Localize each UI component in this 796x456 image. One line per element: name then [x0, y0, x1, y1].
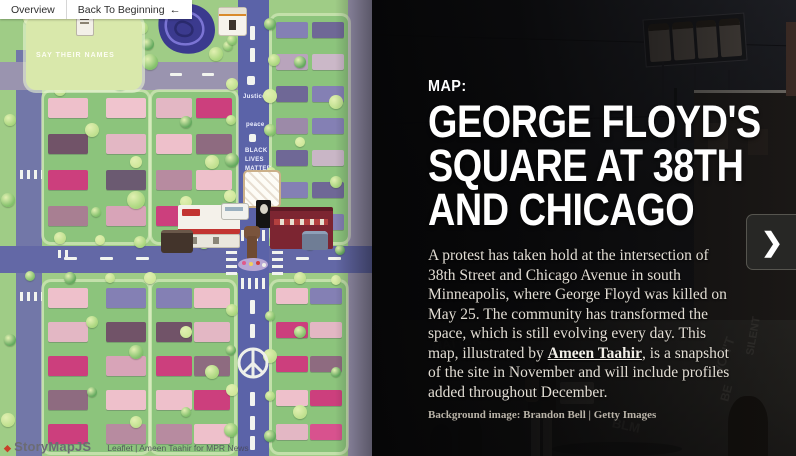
tree — [130, 156, 142, 168]
fist-road-art — [247, 76, 255, 85]
slide-title-line: GEORGE FLOYD'S — [428, 100, 690, 144]
lane-dash — [250, 26, 255, 40]
tree — [130, 416, 142, 428]
crosswalk — [20, 292, 42, 301]
tree — [264, 124, 276, 136]
tree — [180, 116, 192, 128]
lane-dash — [296, 257, 309, 260]
back-to-beginning-button[interactable]: Back To Beginning ← — [67, 0, 192, 19]
house-roof — [276, 390, 308, 406]
house-roof — [194, 390, 230, 410]
tree — [91, 207, 101, 217]
road-art-text: LIVES — [245, 157, 264, 163]
back-arrow-icon: ← — [170, 4, 181, 16]
house-roof — [106, 288, 146, 308]
lane-dash — [250, 416, 255, 430]
house-roof — [276, 288, 308, 304]
shed-icon — [218, 7, 247, 36]
tree — [294, 272, 306, 284]
tree — [294, 326, 306, 338]
tree — [85, 123, 99, 137]
house-roof — [48, 356, 88, 376]
tree — [134, 236, 146, 248]
lane-dash — [250, 392, 255, 406]
house-roof — [276, 118, 308, 134]
chevron-right-icon: ❯ — [761, 229, 783, 255]
illustrated-map[interactable]: JusticepeaceBLACKLIVESMATTER SAY THEIR N… — [0, 0, 420, 456]
tree — [87, 387, 97, 397]
fist-road-art — [249, 134, 256, 142]
house-roof — [48, 98, 88, 118]
storymap-toolbar: Overview Back To Beginning ← — [0, 0, 192, 19]
storymap-diamond-icon: ◆ — [4, 443, 11, 453]
house-roof — [48, 170, 88, 190]
tree — [226, 384, 238, 396]
house-roof — [310, 322, 342, 338]
house-roof — [106, 390, 146, 410]
tree — [331, 275, 341, 285]
tree — [4, 114, 16, 126]
lane-dash — [170, 73, 182, 76]
house-roof — [106, 322, 146, 342]
house-roof — [156, 98, 192, 118]
lane-dash — [250, 436, 255, 450]
tree — [1, 193, 15, 207]
house-roof — [48, 206, 88, 226]
tree — [95, 235, 105, 245]
tree — [205, 365, 219, 379]
house-roof — [106, 356, 146, 376]
tree — [129, 345, 143, 359]
house-roof — [194, 322, 230, 342]
lane-dash — [100, 257, 113, 260]
house-roof — [156, 288, 192, 308]
peace-sign-road-art — [236, 346, 270, 380]
tree — [263, 89, 277, 103]
leaflet-attribution[interactable]: Leaflet | Ameen Taahir for MPR News — [107, 443, 248, 453]
storymap-label: StoryMapJS — [14, 439, 91, 454]
house-roof — [156, 170, 192, 190]
slide-title-line: AND CHICAGO — [428, 188, 690, 232]
tree — [268, 54, 280, 66]
tree — [25, 271, 35, 281]
house-roof — [312, 54, 344, 70]
tree — [105, 273, 115, 283]
crosswalk — [20, 170, 42, 179]
lane-dash — [250, 300, 255, 314]
tree — [64, 272, 76, 284]
house-roof — [312, 22, 344, 38]
house-roof — [156, 134, 192, 154]
house-roof — [196, 170, 232, 190]
lane-dash — [250, 324, 255, 338]
fist-sculpture-planter — [238, 258, 268, 271]
crosswalk — [272, 249, 283, 275]
tree — [264, 430, 276, 442]
house-roof — [312, 118, 344, 134]
overview-label: Overview — [11, 4, 55, 16]
slide-text: MAP: GEORGE FLOYD'S SQUARE AT 38TH AND C… — [428, 78, 740, 421]
house-roof — [276, 150, 308, 166]
house-roof — [276, 424, 308, 440]
tree — [265, 311, 275, 321]
george-floyd-flag — [256, 200, 271, 228]
tree — [225, 153, 239, 167]
slide-kicker: MAP: — [428, 78, 709, 96]
tree — [293, 405, 307, 419]
house-roof — [276, 22, 308, 38]
house-roof — [194, 288, 230, 308]
tree — [1, 413, 15, 427]
tent-structure — [302, 231, 328, 250]
tree — [54, 232, 66, 244]
house-roof — [276, 356, 308, 372]
house-roof — [48, 288, 88, 308]
lane-dash — [202, 73, 214, 76]
tree — [4, 334, 16, 346]
house-roof — [106, 206, 146, 226]
tree — [180, 326, 192, 338]
tree — [144, 272, 156, 284]
van-icon — [221, 203, 249, 220]
tree — [265, 391, 275, 401]
house-roof — [312, 150, 344, 166]
slide-title-line: SQUARE AT 38TH — [428, 144, 690, 188]
house-roof — [106, 170, 146, 190]
tree — [331, 367, 341, 377]
house-roof — [196, 134, 232, 154]
tree — [294, 56, 306, 68]
tree — [181, 407, 191, 417]
road-art-text: peace — [246, 122, 265, 128]
crosswalk — [241, 278, 269, 289]
tree — [330, 176, 342, 188]
house-roof — [310, 288, 342, 304]
tree — [224, 423, 238, 437]
road-art-text: BLACK — [245, 148, 268, 154]
lane-dash — [250, 48, 255, 62]
lane-dash — [64, 257, 77, 260]
slide-description: A protest has taken hold at the intersec… — [428, 246, 740, 402]
house-roof — [276, 86, 308, 102]
tree — [86, 316, 98, 328]
tree — [127, 191, 145, 209]
illustrator-link[interactable]: Ameen Taahir — [548, 345, 642, 362]
lane-dash — [328, 257, 341, 260]
tree — [264, 18, 276, 30]
house-roof — [310, 424, 342, 440]
lane-dash — [136, 257, 149, 260]
storymap-app: JusticepeaceBLACKLIVESMATTER SAY THEIR N… — [0, 0, 796, 456]
tree — [226, 115, 236, 125]
map-attribution: ◆StoryMapJS Leaflet | Ameen Taahir for M… — [4, 439, 249, 454]
next-slide-button[interactable]: ❯ — [746, 214, 796, 270]
tree — [224, 190, 236, 202]
slide-panel: WON'TBESILENTMATTERBLM MAP: GEORGE FLOYD… — [372, 0, 796, 456]
crosswalk — [226, 249, 237, 275]
house-roof — [106, 98, 146, 118]
tree — [295, 137, 305, 147]
house-roof — [48, 134, 88, 154]
background-image-credit: Background image: Brandon Bell | Getty I… — [428, 409, 740, 421]
house-roof — [310, 390, 342, 406]
house-roof — [106, 134, 146, 154]
tree — [226, 345, 236, 355]
tree — [329, 95, 343, 109]
tree — [205, 155, 219, 169]
storymapjs-logo[interactable]: ◆StoryMapJS — [4, 439, 91, 454]
tree — [226, 304, 238, 316]
kiosk-structure — [161, 230, 193, 253]
back-label: Back To Beginning — [78, 4, 165, 16]
tree — [335, 245, 345, 255]
house-roof — [196, 98, 232, 118]
park-label: SAY THEIR NAMES — [36, 52, 115, 59]
house-roof — [156, 356, 192, 376]
tree — [227, 35, 237, 45]
overview-button[interactable]: Overview — [0, 0, 67, 19]
tree — [226, 78, 238, 90]
house-roof — [48, 390, 88, 410]
house-roof — [48, 322, 88, 342]
